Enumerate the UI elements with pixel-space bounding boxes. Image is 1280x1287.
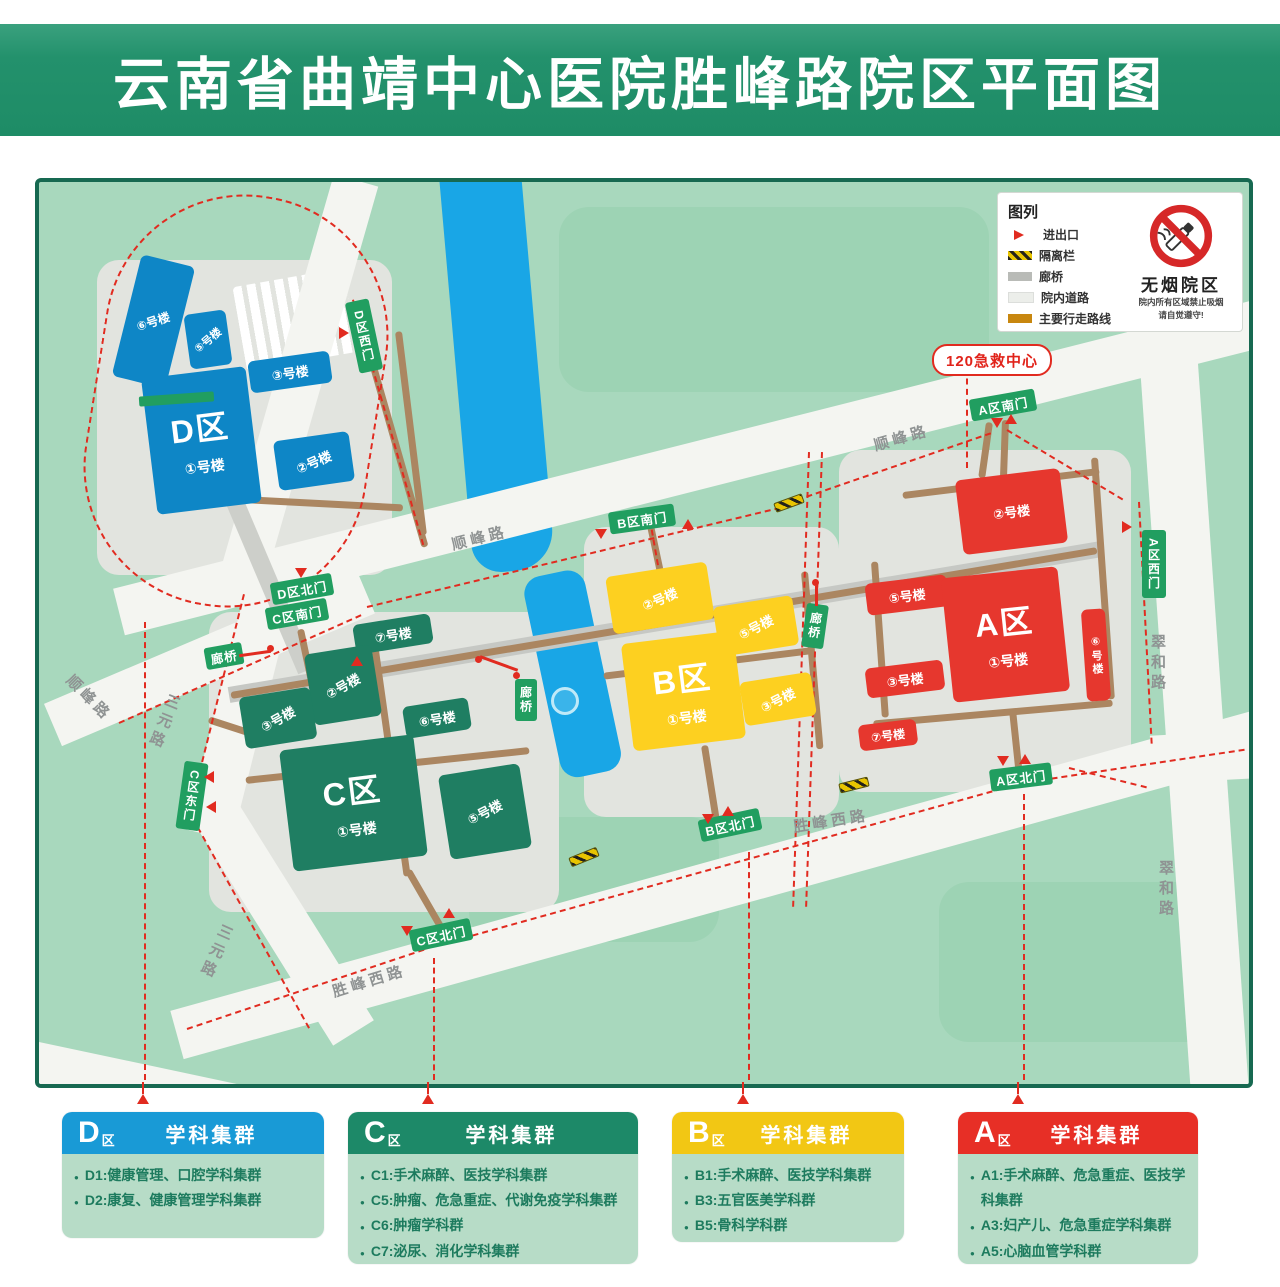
corridor-sign-river: 廊桥 xyxy=(515,679,537,721)
entrance-arrow-icon xyxy=(295,568,307,578)
c-zone-label: C区 xyxy=(320,763,384,816)
title-banner: 云南省曲靖中心医院胜峰路院区平面图 xyxy=(0,24,1280,136)
building-d1-label: ①号楼 xyxy=(184,454,226,479)
no-smoking-line2: 请自觉遵守! xyxy=(1158,309,1203,322)
card-zone-b: B区 学科集群 B1:手术麻醉、医技学科集群 B3:五官医美学科群 B5:骨科学… xyxy=(672,1112,904,1242)
isolation-fence xyxy=(773,493,805,513)
building-c1-label: ①号楼 xyxy=(336,817,378,842)
building-a2: ②号楼 xyxy=(955,468,1068,555)
pointer-dot xyxy=(812,579,819,586)
legend-row-road: 院内道路 xyxy=(1008,289,1126,306)
entrance-arrow-icon xyxy=(702,814,714,824)
building-c-main: C区 ①号楼 xyxy=(279,734,428,872)
building-d2: ②号楼 xyxy=(273,431,355,491)
entrance-arrow-icon xyxy=(401,926,413,936)
legend-row-fence: 隔离栏 xyxy=(1008,247,1126,264)
entrance-arrow-icon xyxy=(351,656,363,666)
dashed-route-card-b xyxy=(748,852,750,1080)
list-item: B5:骨科学科群 xyxy=(684,1213,892,1238)
entrance-arrow-icon xyxy=(1122,521,1132,533)
card-c-header: C区 学科集群 xyxy=(348,1112,638,1154)
list-item: C6:肿瘤学科群 xyxy=(360,1213,626,1238)
card-b-header: B区 学科集群 xyxy=(672,1112,904,1154)
no-smoking-line1: 院内所有区域禁止吸烟 xyxy=(1138,296,1223,309)
pointer-line xyxy=(815,586,818,606)
no-smoking-icon xyxy=(1148,203,1214,269)
list-item: A3:妇产儿、危急重症学科集群 xyxy=(970,1213,1186,1238)
entrance-arrow-icon xyxy=(1019,754,1031,764)
card-d-header: D区 学科集群 xyxy=(62,1112,324,1154)
card-a-body: A1:手术麻醉、危急重症、医技学科集群 A3:妇产儿、危急重症学科集群 A5:心… xyxy=(958,1154,1198,1264)
legend-title: 图列 xyxy=(1008,201,1126,222)
pointer-dot xyxy=(267,645,274,652)
lawn-patch xyxy=(559,207,989,392)
card-connector-a xyxy=(1017,1082,1019,1094)
dashed-route-boundary xyxy=(144,622,146,1080)
building-c3: ③号楼 xyxy=(238,687,317,750)
card-arrow-d xyxy=(137,1094,149,1104)
legend-row-route: 主要行走路线 xyxy=(1008,310,1126,327)
list-item: A5:心脑血管学科群 xyxy=(970,1239,1186,1264)
list-item: C5:肿瘤、危急重症、代谢免疫学科集群 xyxy=(360,1188,626,1213)
entrance-arrow-icon xyxy=(722,806,734,816)
fence-swatch-icon xyxy=(1008,251,1032,260)
list-item: A1:手术麻醉、危急重症、医技学科集群 xyxy=(970,1163,1186,1213)
card-d-body: D1:健康管理、口腔学科集群 D2:康复、健康管理学科集群 xyxy=(62,1154,324,1238)
building-b-main: B区 ①号楼 xyxy=(621,631,746,752)
card-connector-b xyxy=(742,1082,744,1094)
entrance-arrow-icon xyxy=(997,756,1009,766)
pointer-dot xyxy=(475,656,482,663)
no-smoking-title: 无烟院区 xyxy=(1141,271,1221,296)
campus-map: D区 ①号楼 ②号楼 ③号楼 ⑤号楼 ⑥号楼 ⑦号楼 ②号楼 ③号楼 ⑥号楼 C… xyxy=(35,178,1253,1088)
building-d5: ⑤号楼 xyxy=(183,309,232,369)
card-arrow-c xyxy=(422,1094,434,1104)
building-d-main: D区 ①号楼 xyxy=(141,366,262,515)
list-item: B3:五官医美学科群 xyxy=(684,1188,892,1213)
list-item: C7:泌尿、消化学科集群 xyxy=(360,1239,626,1264)
legend-row-corridor: 廊桥 xyxy=(1008,268,1126,285)
pointer-dot xyxy=(513,672,520,679)
card-a-header: A区 学科集群 xyxy=(958,1112,1198,1154)
road-bottom-left xyxy=(35,1041,502,1088)
legend-items: 图列 进出口 隔离栏 廊桥 院内道路 主要行走路线 xyxy=(1008,201,1126,325)
pond xyxy=(551,687,579,715)
card-connector-d xyxy=(142,1082,144,1094)
road-swatch-icon xyxy=(1008,292,1034,303)
card-arrow-b xyxy=(737,1094,749,1104)
card-connector-c xyxy=(427,1082,429,1094)
building-b1-label: ①号楼 xyxy=(666,705,708,730)
card-zone-d: D区 学科集群 D1:健康管理、口腔学科集群 D2:康复、健康管理学科集群 xyxy=(62,1112,324,1238)
entrance-arrow-icon xyxy=(443,908,455,918)
no-smoking-sign: 无烟院区 院内所有区域禁止吸烟 请自觉遵守! xyxy=(1126,201,1236,325)
dashed-route-emergency xyxy=(966,368,968,468)
a-zone-label: A区 xyxy=(972,595,1036,647)
emergency-center-label: 120急救中心 xyxy=(932,344,1052,376)
card-b-body: B1:手术麻醉、医技学科集群 B3:五官医美学科群 B5:骨科学科群 xyxy=(672,1154,904,1242)
map-legend: 图列 进出口 隔离栏 廊桥 院内道路 主要行走路线 xyxy=(997,192,1243,332)
dashed-route-card-c xyxy=(433,958,435,1080)
entrance-arrow-icon xyxy=(595,529,607,539)
b-zone-label: B区 xyxy=(650,651,714,704)
card-zone-c: C区 学科集群 C1:手术麻醉、医技学科集群 C5:肿瘤、危急重症、代谢免疫学科… xyxy=(348,1112,638,1264)
route-swatch-icon xyxy=(1008,314,1032,323)
entrance-arrow-icon xyxy=(1014,230,1036,240)
card-arrow-a xyxy=(1012,1094,1024,1104)
card-zone-a: A区 学科集群 A1:手术麻醉、危急重症、医技学科集群 A3:妇产儿、危急重症学… xyxy=(958,1112,1198,1264)
d-zone-label: D区 xyxy=(168,401,232,454)
road-label-cuihe-1: 翠和路 xyxy=(1147,634,1168,694)
list-item: C1:手术麻醉、医技学科集群 xyxy=(360,1163,626,1188)
road-label-sanyuan-2: 三元路 xyxy=(194,920,238,983)
building-c2: ②号楼 xyxy=(304,644,382,726)
card-c-body: C1:手术麻醉、医技学科集群 C5:肿瘤、危急重症、代谢免疫学科集群 C6:肿瘤… xyxy=(348,1154,638,1264)
corridor-swatch-icon xyxy=(1008,272,1032,281)
page-title: 云南省曲靖中心医院胜峰路院区平面图 xyxy=(113,39,1167,121)
gate-a-west: A区西门 xyxy=(1142,530,1166,598)
entrance-arrow-icon xyxy=(339,327,349,339)
list-item: B1:手术麻醉、医技学科集群 xyxy=(684,1163,892,1188)
building-c5: ⑤号楼 xyxy=(438,763,532,860)
list-item: D2:康复、健康管理学科集群 xyxy=(74,1188,312,1213)
dashed-route-card-a xyxy=(1023,794,1025,1080)
entrance-arrow-icon xyxy=(1005,414,1017,424)
list-item: D1:健康管理、口腔学科集群 xyxy=(74,1163,312,1188)
road-label-cuihe-2: 翠和路 xyxy=(1155,860,1176,920)
building-a-main: A区 ①号楼 xyxy=(941,566,1070,703)
entrance-arrow-icon xyxy=(206,801,216,813)
entrance-arrow-icon xyxy=(991,418,1003,428)
entrance-arrow-icon xyxy=(204,771,214,783)
entrance-arrow-icon xyxy=(682,519,694,529)
building-a1-label: ①号楼 xyxy=(987,649,1029,673)
legend-row-entrance: 进出口 xyxy=(1008,226,1126,243)
